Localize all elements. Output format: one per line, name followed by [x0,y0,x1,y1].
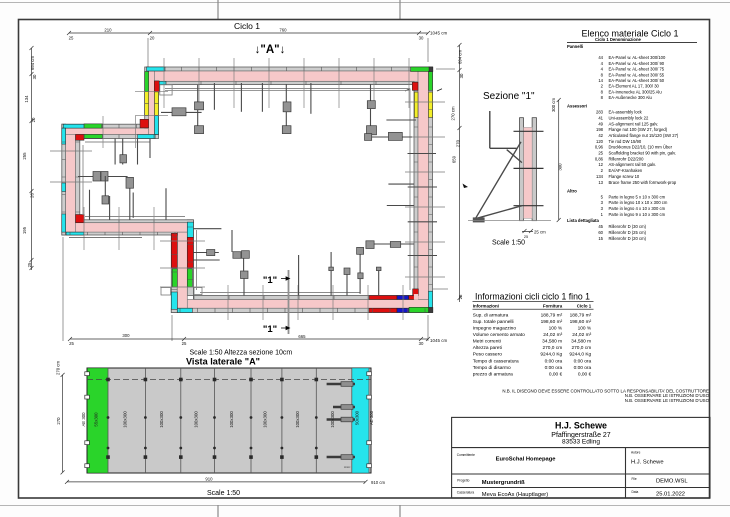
svg-text:EuroSchal Homepage: EuroSchal Homepage [496,457,557,463]
svg-text:Scale 1:50: Scale 1:50 [492,240,525,247]
svg-text:198,60 m²: 198,60 m² [541,319,563,325]
svg-text:Parte in legno 5 x 10 x 300 cm: Parte in legno 5 x 10 x 300 cm [609,194,666,199]
svg-text:25: 25 [458,294,463,299]
svg-text:270: 270 [56,417,61,425]
svg-text:100x300: 100x300 [229,411,234,428]
svg-text:44: 44 [598,55,603,60]
svg-text:DEMO.WSL: DEMO.WSL [656,479,688,485]
svg-text:EA-Panel w. AL-sheet 300/100: EA-Panel w. AL-sheet 300/100 [609,55,666,60]
svg-text:Casseratura: Casseratura [457,490,475,494]
svg-text:30: 30 [459,73,464,78]
svg-text:120: 120 [596,139,604,144]
svg-text:EA-Panel w. AL-sheet 300/ 50: EA-Panel w. AL-sheet 300/ 50 [609,78,665,83]
svg-text:H.J. Schewe: H.J. Schewe [555,421,607,432]
svg-text:Druckkonus D22/10, (10 mm Über: Druckkonus D22/10, (10 mm Über [609,145,673,150]
svg-text:24,02 m³: 24,02 m³ [543,332,562,338]
svg-text:30: 30 [32,74,37,79]
svg-text:Brace frame 250 with formwork-: Brace frame 250 with formwork-prop [609,180,677,185]
svg-text:134: 134 [24,95,29,103]
svg-text:File: File [632,477,637,481]
svg-text:9244,0 Kg: 9244,0 Kg [569,352,591,358]
svg-text:198: 198 [596,127,604,132]
svg-text:41: 41 [598,115,603,120]
svg-text:AE 300: AE 300 [81,412,86,427]
svg-text:195: 195 [22,226,27,234]
svg-text:0:00 ora: 0:00 ora [545,365,563,371]
svg-text:EA-Panel w. AL-sheet 300/ 55: EA-Panel w. AL-sheet 300/ 55 [609,72,665,77]
svg-text:694 cm: 694 cm [458,50,463,65]
svg-text:300 cm: 300 cm [551,98,556,113]
svg-text:Parte in legno 10 x 10 x 300 c: Parte in legno 10 x 10 x 300 cm [609,200,668,205]
svg-text:25: 25 [182,341,187,346]
svg-text:100x300: 100x300 [295,411,300,428]
svg-text:25: 25 [69,341,74,346]
svg-text:255: 255 [22,152,27,160]
svg-text:45: 45 [598,224,603,229]
svg-text:25 cm: 25 cm [534,230,546,235]
svg-text:Anm:: Anm: [344,465,351,469]
svg-text:55x300: 55x300 [94,412,99,427]
svg-text:Tie rod DW 15/90: Tie rod DW 15/90 [609,139,642,144]
svg-text:659: 659 [452,155,457,163]
svg-text:Meva EcoAs (Hauptlager): Meva EcoAs (Hauptlager) [482,492,548,498]
svg-text:100 %: 100 % [578,326,592,332]
svg-text:270 cm: 270 cm [451,106,456,121]
svg-text:Impegno magazzino: Impegno magazzino [473,326,517,332]
svg-text:Sezione "1": Sezione "1" [483,91,535,102]
svg-text:EA-Panel w. AL-sheet 300/ 75: EA-Panel w. AL-sheet 300/ 75 [609,67,665,72]
svg-text:Metri correnti: Metri correnti [473,339,501,345]
svg-text:34,580 m: 34,580 m [571,339,591,345]
svg-text:N.B. OSSERVARE LE ISTRUZIONI D: N.B. OSSERVARE LE ISTRUZIONI D’USO [625,398,710,403]
svg-text:Lista dettagliata: Lista dettagliata [567,218,600,223]
svg-text:EA-assembly lock: EA-assembly lock [609,110,643,115]
svg-text:100 %: 100 % [549,326,563,332]
svg-text:1045 cm: 1045 cm [430,338,448,343]
svg-text:Ciclo 1: Ciclo 1 [234,21,260,31]
svg-text:Scale 1:50 Altezza sezione 1: Scale 1:50 Altezza sezione 10cm [190,350,293,357]
svg-text:25: 25 [69,36,74,41]
svg-text:83533 Edling: 83533 Edling [562,439,600,446]
svg-text:0,96: 0,96 [595,145,604,150]
svg-text:↓"A"↓: ↓"A"↓ [255,44,286,56]
svg-text:Peso cassero: Peso cassero [473,352,502,358]
svg-text:"1": "1" [263,275,277,286]
svg-text:Fornitura: Fornitura [543,304,563,309]
svg-text:760: 760 [279,28,287,33]
svg-text:34,580 m: 34,580 m [542,339,562,345]
svg-text:Parte in legno 4 x 10 x 300 cm: Parte in legno 4 x 10 x 300 cm [609,206,666,211]
svg-text:EA/AF-Kranhaken: EA/AF-Kranhaken [609,168,643,173]
svg-text:100x300: 100x300 [194,411,199,428]
svg-text:Volume cemento armato: Volume cemento armato [473,332,525,338]
svg-text:Articulated flange nut 15/120: Articulated flange nut 15/120 (SW 27) [609,133,679,138]
svg-text:Ciclo 1 Denominazione: Ciclo 1 Denominazione [595,37,642,42]
svg-text:Scaffolding bracket 90 with pi: Scaffolding bracket 90 with pin, galv. [609,151,677,156]
svg-text:EA-Innenecke AL 300/25 Alu: EA-Innenecke AL 300/25 Alu [609,89,663,94]
svg-text:Rillenrohr D (25 cm): Rillenrohr D (25 cm) [609,230,647,235]
svg-text:prezzo di armatura: prezzo di armatura [473,371,513,377]
svg-text:26: 26 [30,193,35,198]
svg-text:Autore: Autore [631,451,641,455]
svg-text:14: 14 [598,78,603,83]
svg-text:100x300: 100x300 [159,411,164,428]
svg-text:Assessori: Assessori [567,103,587,108]
svg-text:Tempo di casseratura: Tempo di casseratura [473,358,519,364]
svg-text:Altezza pareti: Altezza pareti [473,345,502,351]
svg-text:Vista laterale "A": Vista laterale "A" [186,357,260,367]
svg-text:49: 49 [598,121,603,126]
svg-text:25: 25 [27,262,32,267]
svg-text:Informazioni cicli ciclo 1 fi: Informazioni cicli ciclo 1 fino 1 [475,291,590,301]
svg-text:AS-alignment rail 50 galv.: AS-alignment rail 50 galv. [609,162,656,167]
svg-text:270,0 cm: 270,0 cm [542,345,562,351]
svg-text:694 cm: 694 cm [30,56,35,71]
svg-text:9244,0 Kg: 9244,0 Kg [540,352,562,358]
svg-text:134: 134 [596,174,604,179]
svg-text:Committente: Committente [457,453,475,457]
svg-text:Rillenrohr D (30 cm): Rillenrohr D (30 cm) [609,224,647,229]
svg-text:Sup. di armatura: Sup. di armatura [473,312,509,318]
svg-text:Scale 1:50: Scale 1:50 [207,490,240,497]
svg-text:300: 300 [558,163,563,171]
svg-text:25: 25 [598,151,603,156]
svg-text:188,79 m²: 188,79 m² [541,312,563,318]
svg-text:25: 25 [524,235,528,239]
svg-text:Parte in legno 9 x 10 x 300 cm: Parte in legno 9 x 10 x 300 cm [609,212,666,217]
svg-text:Informazioni: Informazioni [473,304,499,309]
svg-text:30: 30 [419,36,424,41]
svg-text:EA-Außenecke 300 Alu: EA-Außenecke 300 Alu [609,95,653,100]
svg-text:Flange nut 100 (SW 27, forged): Flange nut 100 (SW 27, forged) [609,127,668,132]
svg-text:0,00 €: 0,00 € [549,371,563,377]
svg-text:H.J. Schewe: H.J. Schewe [631,459,664,465]
svg-text:Data: Data [632,490,639,494]
svg-text:Flange screw 10: Flange screw 10 [609,174,640,179]
svg-text:30: 30 [419,341,424,346]
svg-text:0,00 €: 0,00 € [578,371,592,377]
svg-text:EA-Panel w. AL-sheet 300/ 90: EA-Panel w. AL-sheet 300/ 90 [609,61,665,66]
svg-text:100x300: 100x300 [123,411,128,428]
svg-text:15: 15 [598,236,603,241]
svg-text:198,60 m²: 198,60 m² [570,319,592,325]
svg-text:50x300: 50x300 [354,410,359,425]
svg-text:Uni-assembly lock 22: Uni-assembly lock 22 [609,115,649,120]
svg-text:Tempo di disarmo: Tempo di disarmo [473,365,511,371]
svg-text:25.01.2022: 25.01.2022 [656,491,685,497]
svg-text:Mustergrundriß: Mustergrundriß [482,480,525,486]
svg-text:0,86: 0,86 [595,156,604,161]
svg-text:12: 12 [598,162,603,167]
svg-text:188,79 m²: 188,79 m² [570,312,592,318]
svg-text:270: 270 [456,139,461,147]
svg-text:AS-alignment rail 125 galv.: AS-alignment rail 125 galv. [609,121,659,126]
svg-text:665: 665 [298,334,306,339]
svg-text:Rillenrohr D22/200: Rillenrohr D22/200 [609,156,645,161]
svg-text:Progetto: Progetto [457,479,469,483]
svg-text:42: 42 [598,133,603,138]
svg-text:20: 20 [31,117,36,122]
svg-text:Rillenrohr D (20 cm): Rillenrohr D (20 cm) [609,236,647,241]
svg-text:24,02 m³: 24,02 m³ [572,332,591,338]
svg-text:13: 13 [598,180,603,185]
svg-text:1045 cm: 1045 cm [430,31,448,36]
svg-text:0:00 ora: 0:00 ora [574,365,592,371]
svg-text:210: 210 [104,28,112,33]
svg-text:910 cm: 910 cm [371,480,386,485]
svg-text:0:00 ora: 0:00 ora [574,358,592,364]
svg-text:283: 283 [596,110,604,115]
svg-text:Altro: Altro [567,188,577,193]
svg-text:100x300: 100x300 [263,411,268,428]
svg-text:20: 20 [150,36,155,41]
svg-text:300: 300 [122,333,130,338]
svg-text:100x300: 100x300 [330,411,335,428]
svg-text:Ciclo 1: Ciclo 1 [577,304,592,309]
svg-text:270,0 cm: 270,0 cm [571,345,591,351]
svg-text:AE 300: AE 300 [369,410,374,425]
svg-text:EA-Element AL 17, 300/ 30: EA-Element AL 17, 300/ 30 [609,84,660,89]
svg-text:910: 910 [205,477,213,482]
svg-text:0:00 ora: 0:00 ora [545,358,563,364]
svg-text:60: 60 [598,230,603,235]
svg-text:270 cm: 270 cm [56,361,61,376]
svg-text:"1": "1" [263,324,277,335]
svg-text:Pannelli: Pannelli [567,44,583,49]
svg-text:Sup. totale pannelli: Sup. totale pannelli [473,319,514,325]
